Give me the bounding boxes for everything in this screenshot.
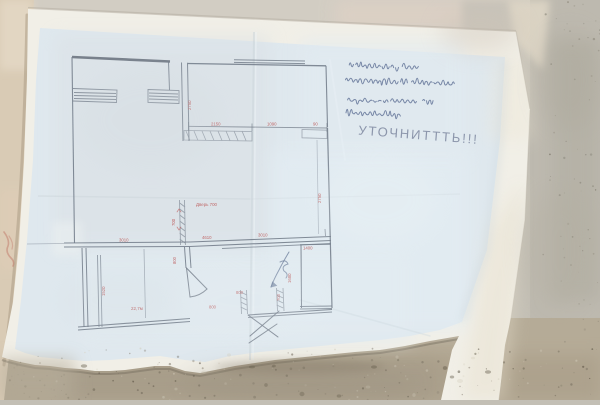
svg-text:700: 700 (171, 218, 176, 226)
svg-text:Дверь 700: Дверь 700 (196, 202, 218, 207)
svg-text:3010: 3010 (258, 233, 268, 238)
svg-text:1400: 1400 (303, 246, 313, 251)
svg-text:800: 800 (172, 256, 177, 264)
svg-text:4610: 4610 (202, 235, 212, 240)
svg-text:3010: 3010 (119, 238, 129, 243)
svg-text:90: 90 (313, 122, 318, 127)
svg-text:1090: 1090 (267, 122, 277, 127)
